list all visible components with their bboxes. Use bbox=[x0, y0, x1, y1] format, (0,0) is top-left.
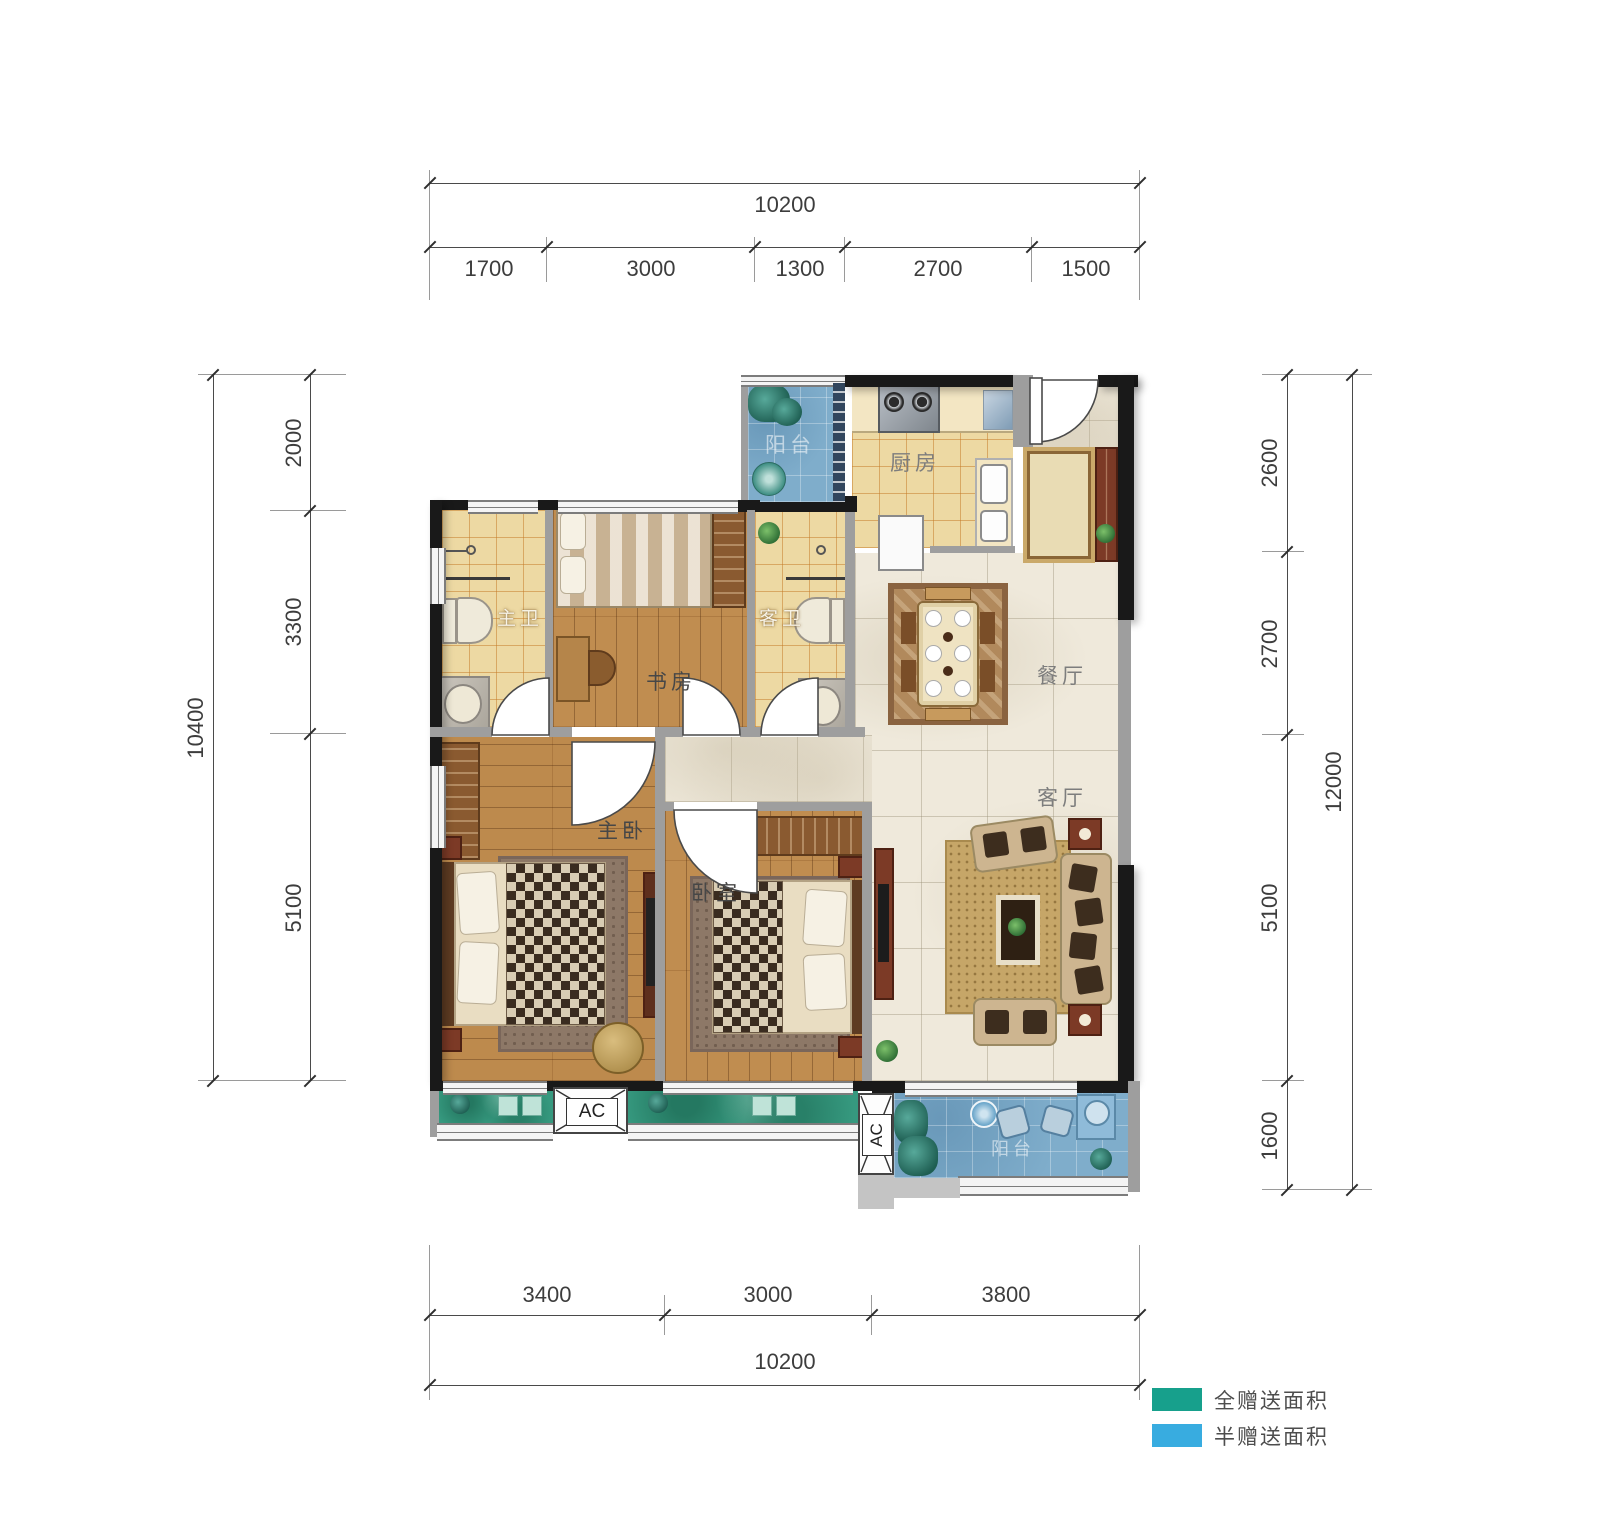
wall bbox=[545, 510, 553, 727]
shower-arm bbox=[444, 550, 468, 552]
master-pillow bbox=[456, 941, 499, 1005]
room-label-master-bath: 主卫 bbox=[497, 604, 543, 631]
hallway-floor bbox=[665, 735, 872, 802]
room-label-kitchen: 厨房 bbox=[890, 447, 940, 477]
legend-label-half-gift: 半赠送面积 bbox=[1214, 1421, 1329, 1451]
shower-partition bbox=[786, 577, 846, 580]
balcony-top-foliage bbox=[772, 398, 802, 426]
stove-burner bbox=[884, 392, 904, 412]
sofa-right bbox=[1060, 853, 1112, 1005]
wall bbox=[1118, 375, 1134, 620]
gift-balcony-towel bbox=[776, 1096, 796, 1116]
room-label-study: 书房 bbox=[646, 666, 696, 696]
gift-balcony-plant bbox=[450, 1094, 470, 1114]
balcony-rail bbox=[437, 1123, 553, 1141]
sink-basin bbox=[980, 464, 1008, 504]
dim-top-seg: 1300 bbox=[776, 256, 825, 282]
room-label-guest-bath: 客卫 bbox=[759, 604, 805, 631]
shower-head bbox=[816, 545, 826, 555]
gift-balcony-towel bbox=[498, 1096, 518, 1116]
master-pillow bbox=[456, 871, 500, 936]
wall bbox=[930, 546, 1015, 553]
ac-label: AC bbox=[579, 1101, 605, 1122]
wall bbox=[1118, 620, 1131, 865]
table-centerpiece bbox=[943, 666, 953, 676]
shower-partition bbox=[444, 577, 510, 580]
balcony-table bbox=[970, 1100, 998, 1128]
plate bbox=[954, 610, 971, 627]
dim-right-seg: 2700 bbox=[1257, 620, 1283, 669]
study-desk bbox=[556, 636, 590, 702]
vanity-basin bbox=[444, 684, 482, 724]
balcony-bottom-foliage bbox=[898, 1136, 938, 1176]
dining-bench bbox=[925, 587, 971, 600]
balcony-rail bbox=[958, 1176, 1128, 1196]
master-headboard bbox=[440, 862, 454, 1026]
room-label-master-bedroom: 主卧 bbox=[597, 815, 647, 845]
wall bbox=[1118, 865, 1134, 1081]
dim-right-total: 12000 bbox=[1321, 751, 1347, 812]
toilet-tank bbox=[830, 598, 845, 644]
door-opening bbox=[572, 727, 655, 737]
ac-label-box: AC bbox=[566, 1098, 618, 1126]
sink-basin bbox=[980, 510, 1008, 542]
coffee-table-plant bbox=[1008, 918, 1026, 936]
stove-burner bbox=[912, 392, 932, 412]
window bbox=[430, 766, 446, 848]
entry-door-mat bbox=[1023, 447, 1095, 563]
dim-bottom-total: 10200 bbox=[754, 1349, 815, 1375]
plate bbox=[925, 680, 942, 697]
dining-chair bbox=[980, 612, 995, 644]
living-plant bbox=[876, 1040, 898, 1062]
door-opening bbox=[761, 727, 818, 737]
dishwasher bbox=[878, 515, 924, 571]
plate bbox=[925, 610, 942, 627]
room-label-living: 客厅 bbox=[1037, 782, 1087, 812]
door-opening bbox=[683, 727, 740, 737]
wall bbox=[845, 496, 857, 512]
dining-bench bbox=[925, 708, 971, 721]
window bbox=[833, 383, 845, 503]
study-pillow bbox=[560, 556, 586, 594]
dim-top-total: 10200 bbox=[754, 192, 815, 218]
toilet-tank bbox=[442, 598, 457, 644]
wall bbox=[1013, 375, 1033, 447]
dim-top-seg: 3000 bbox=[627, 256, 676, 282]
nightstand bbox=[838, 1036, 864, 1058]
gift-balcony-towel bbox=[752, 1096, 772, 1116]
dim-right-seg: 5100 bbox=[1257, 884, 1283, 933]
dining-chair bbox=[901, 612, 916, 644]
wall bbox=[741, 375, 748, 510]
sofa-bottom bbox=[973, 998, 1057, 1046]
window bbox=[443, 1081, 547, 1095]
nightstand bbox=[838, 856, 864, 878]
bedroom-pillow bbox=[803, 953, 848, 1011]
window bbox=[558, 500, 738, 514]
dim-left-seg: 3300 bbox=[281, 598, 307, 647]
dim-right-seg: 2600 bbox=[1257, 439, 1283, 488]
dim-bottom-seg: 3000 bbox=[744, 1282, 793, 1308]
legend-swatch-half-gift bbox=[1152, 1424, 1202, 1447]
plate bbox=[925, 645, 942, 662]
guest-bath-plant bbox=[758, 522, 780, 544]
tv bbox=[878, 884, 889, 962]
kitchen-window-pane bbox=[983, 390, 1013, 430]
shoe-cabinet bbox=[1095, 447, 1118, 562]
door-opening bbox=[674, 802, 757, 811]
ac-label-box: AC bbox=[862, 1114, 892, 1156]
master-tv bbox=[646, 898, 655, 986]
room-label-balcony-top: 阳台 bbox=[765, 429, 815, 459]
wall bbox=[655, 735, 665, 1081]
bedroom-pillow bbox=[802, 889, 848, 948]
dining-chair bbox=[901, 660, 916, 692]
window bbox=[430, 548, 446, 604]
dim-bottom-seg: 3400 bbox=[523, 1282, 572, 1308]
plate bbox=[954, 680, 971, 697]
room-label-balcony-bottom: 阳台 bbox=[991, 1135, 1035, 1161]
legend-swatch-full-gift bbox=[1152, 1388, 1202, 1411]
ac-label: AC bbox=[867, 1123, 887, 1147]
wall bbox=[747, 510, 755, 727]
legend-label-full-gift: 全赠送面积 bbox=[1214, 1385, 1329, 1415]
window bbox=[905, 1081, 1077, 1097]
door-opening bbox=[492, 727, 549, 737]
bedroom-wardrobe bbox=[752, 816, 864, 856]
dim-bottom-seg: 3800 bbox=[982, 1282, 1031, 1308]
plate bbox=[954, 645, 971, 662]
dim-left-total: 10400 bbox=[183, 697, 209, 758]
gift-balcony-plant bbox=[648, 1093, 668, 1113]
dining-chair bbox=[980, 660, 995, 692]
side-table bbox=[1068, 818, 1102, 850]
room-label-dining: 餐厅 bbox=[1037, 660, 1087, 690]
table-centerpiece bbox=[943, 632, 953, 642]
window bbox=[741, 375, 845, 387]
balcony-top-parasol bbox=[752, 462, 786, 496]
vanity-basin bbox=[805, 686, 841, 726]
washing-machine-drum bbox=[1084, 1100, 1110, 1126]
wall bbox=[862, 802, 872, 1081]
dim-right-seg: 1600 bbox=[1257, 1112, 1283, 1161]
master-blanket bbox=[506, 863, 605, 1025]
dim-left-seg: 2000 bbox=[281, 419, 307, 468]
dim-top-seg: 1700 bbox=[465, 256, 514, 282]
window bbox=[468, 500, 538, 514]
wall bbox=[845, 496, 855, 735]
balcony-bottom-plant bbox=[1090, 1148, 1112, 1170]
gift-balcony-towel bbox=[522, 1096, 542, 1116]
study-pillow bbox=[560, 512, 586, 550]
balcony-ledge bbox=[894, 1178, 960, 1198]
entry-plant bbox=[1096, 524, 1115, 543]
dim-left-seg: 5100 bbox=[281, 884, 307, 933]
pouf bbox=[592, 1022, 644, 1074]
dim-top-seg: 1500 bbox=[1062, 256, 1111, 282]
dim-top-seg: 2700 bbox=[914, 256, 963, 282]
wall bbox=[845, 375, 1013, 387]
balcony-ledge bbox=[858, 1175, 894, 1209]
balcony-rail bbox=[628, 1123, 858, 1141]
room-label-bedroom: 卧室 bbox=[691, 877, 741, 907]
study-side-cabinet bbox=[712, 506, 746, 608]
window bbox=[663, 1081, 853, 1095]
side-table bbox=[1068, 1004, 1102, 1036]
floor-plan: AC AC 阳台 厨房 主卫 书房 客卫 餐厅 客厅 主卧 卧室 阳台 1020… bbox=[0, 0, 1600, 1517]
balcony-rail-side bbox=[1128, 1081, 1140, 1192]
